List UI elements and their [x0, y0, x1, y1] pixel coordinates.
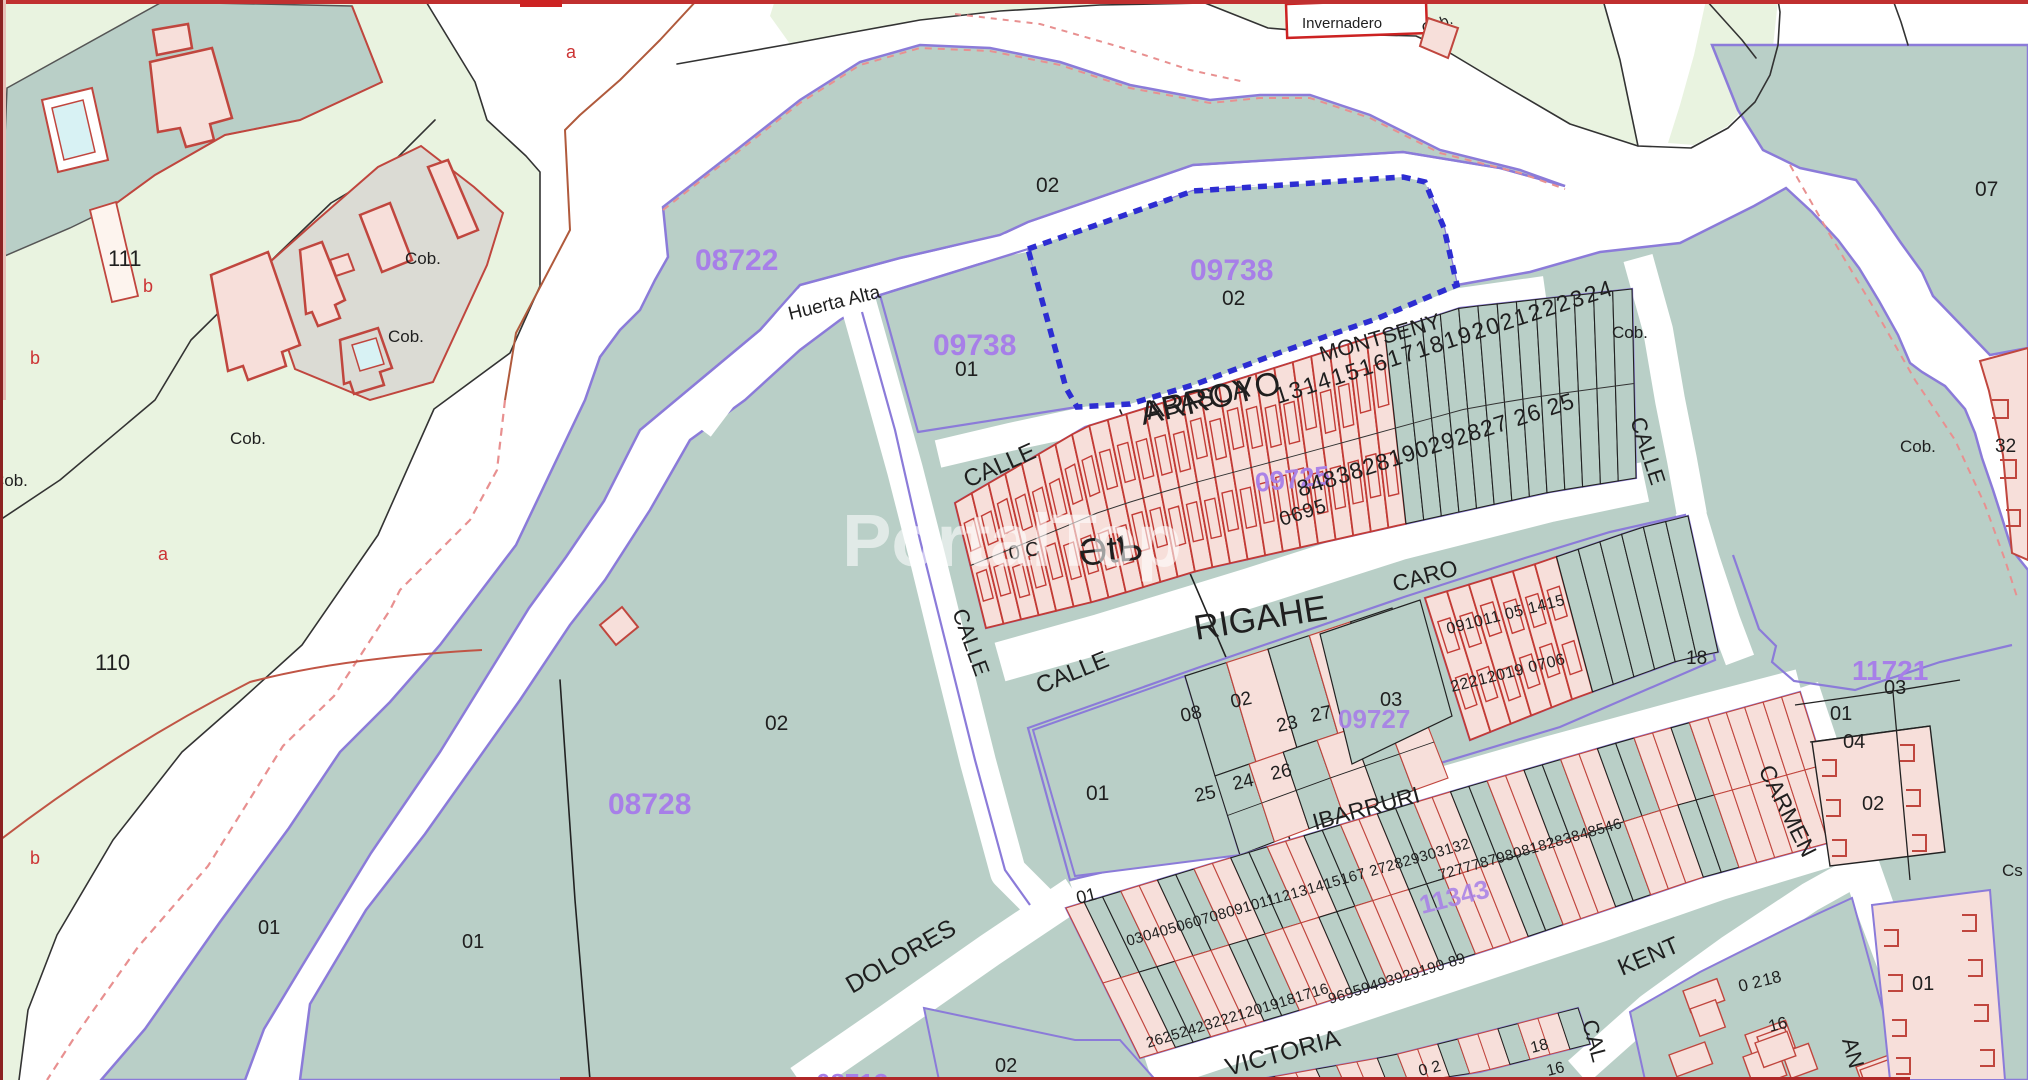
svg-text:08728: 08728: [608, 788, 691, 821]
svg-text:23: 23: [1275, 712, 1300, 737]
svg-text:01: 01: [462, 931, 484, 953]
svg-text:Cob.: Cob.: [0, 471, 28, 490]
svg-text:25: 25: [1193, 782, 1218, 807]
svg-text:02: 02: [1862, 793, 1884, 815]
svg-text:b: b: [30, 848, 40, 868]
svg-text:a: a: [158, 544, 169, 564]
svg-text:b: b: [30, 348, 40, 368]
svg-text:Cob.: Cob.: [1612, 323, 1648, 342]
svg-text:Cob.: Cob.: [1900, 437, 1936, 456]
svg-text:01: 01: [258, 917, 280, 939]
svg-text:PortalTop: PortalTop: [842, 499, 1182, 582]
svg-text:02: 02: [995, 1055, 1017, 1077]
svg-text:09738: 09738: [1190, 254, 1273, 287]
svg-text:b: b: [143, 276, 153, 296]
svg-text:111: 111: [108, 246, 141, 271]
svg-text:02: 02: [1229, 688, 1254, 713]
svg-text:08722: 08722: [695, 244, 778, 277]
svg-text:03: 03: [1884, 677, 1906, 699]
svg-text:110: 110: [95, 650, 130, 675]
svg-text:03: 03: [1380, 689, 1402, 711]
svg-text:32: 32: [1995, 436, 2016, 457]
svg-text:04: 04: [1843, 731, 1865, 753]
svg-text:02: 02: [1036, 174, 1059, 197]
svg-text:01: 01: [1086, 782, 1109, 805]
svg-text:01: 01: [1912, 973, 1934, 995]
svg-text:02: 02: [1222, 287, 1245, 310]
svg-text:a: a: [566, 42, 577, 62]
svg-text:Cob.: Cob.: [388, 327, 424, 346]
svg-text:27: 27: [1309, 702, 1334, 727]
svg-text:Cob.: Cob.: [230, 429, 266, 448]
svg-text:26: 26: [1269, 760, 1294, 785]
svg-text:02: 02: [765, 712, 788, 735]
svg-text:Cs: Cs: [2002, 861, 2023, 880]
svg-text:01: 01: [955, 358, 978, 381]
svg-text:Invernadero: Invernadero: [1302, 15, 1382, 32]
svg-text:18: 18: [1686, 648, 1707, 669]
svg-text:08: 08: [1179, 702, 1204, 727]
svg-text:07: 07: [1975, 178, 1998, 201]
svg-text:Cob.: Cob.: [405, 249, 441, 268]
svg-text:01: 01: [1830, 703, 1852, 725]
